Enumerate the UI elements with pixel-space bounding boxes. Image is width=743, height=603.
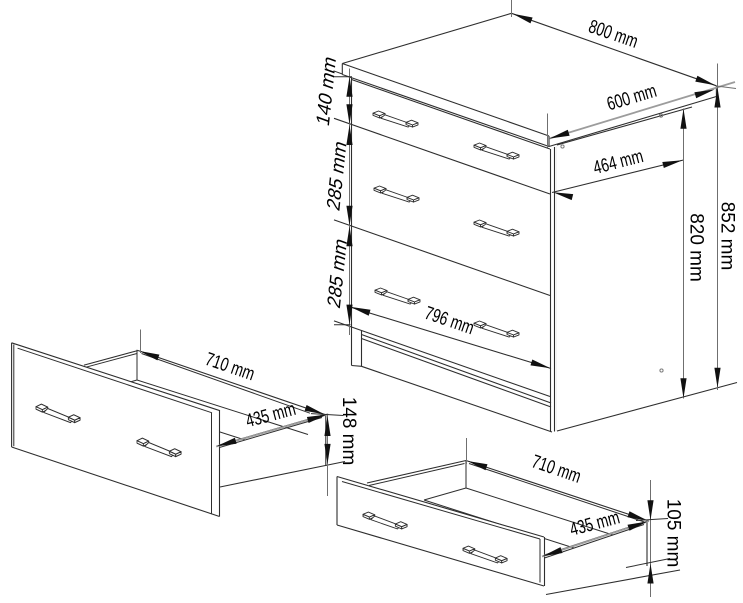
svg-text:820 mm: 820 mm xyxy=(685,213,706,282)
svg-text:140 mm: 140 mm xyxy=(314,53,341,129)
svg-text:710 mm: 710 mm xyxy=(529,450,584,487)
svg-text:285 mm: 285 mm xyxy=(325,236,352,312)
svg-text:148 mm: 148 mm xyxy=(338,397,359,466)
svg-text:285 mm: 285 mm xyxy=(324,138,351,214)
svg-text:852 mm: 852 mm xyxy=(716,202,737,271)
svg-text:105 mm: 105 mm xyxy=(662,499,683,568)
